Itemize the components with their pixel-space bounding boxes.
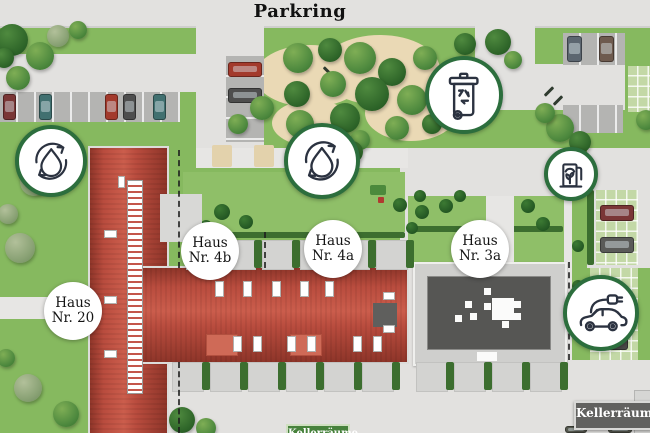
tree — [5, 233, 35, 263]
hedge-divider — [484, 362, 492, 390]
green-parking-east — [596, 190, 638, 265]
bush — [393, 198, 407, 212]
terrace — [262, 240, 294, 270]
car-glass — [125, 101, 134, 111]
car-glass — [233, 66, 257, 72]
hedge-divider — [368, 240, 376, 268]
bush — [572, 240, 584, 252]
tree — [355, 77, 389, 111]
roof-skylight — [253, 336, 262, 352]
tree — [636, 110, 650, 130]
play-equipment — [370, 185, 386, 195]
roof-skylight — [307, 336, 316, 352]
roof-skylight — [373, 336, 382, 352]
hedge-divider — [292, 240, 300, 268]
car-glass — [233, 92, 257, 98]
hedge-divider — [254, 240, 262, 268]
rooftop-vent — [484, 288, 491, 295]
car-glass — [601, 43, 612, 53]
tree — [196, 418, 216, 433]
bush — [521, 199, 535, 213]
hedge-divider — [446, 362, 454, 390]
hedge-divider — [240, 362, 248, 390]
parked-car — [105, 94, 118, 120]
property-boundary — [178, 150, 180, 268]
parked-car — [228, 62, 262, 77]
car-glass — [569, 43, 580, 53]
label-haus-4a[interactable]: Haus Nr. 4a — [304, 220, 362, 278]
label-line: Haus — [451, 234, 509, 249]
tree — [344, 42, 376, 74]
entrance-canopy — [477, 352, 497, 361]
car-glass — [605, 241, 629, 247]
hedge-divider — [316, 362, 324, 390]
roof-window — [118, 176, 125, 188]
parked-car — [153, 94, 166, 120]
hedge-divider — [560, 362, 568, 390]
terrace — [324, 362, 356, 392]
tree — [26, 42, 54, 70]
terrace — [492, 362, 524, 392]
roof-window — [383, 325, 395, 333]
label-line: Haus — [304, 234, 362, 249]
tree — [318, 38, 342, 62]
street-label-parkring: Parkring — [230, 1, 370, 22]
roof-window-strip — [127, 180, 143, 394]
terrace — [172, 362, 204, 392]
bush — [214, 204, 230, 220]
car-glass — [155, 101, 164, 111]
roof-skylight — [215, 281, 224, 297]
hedge-divider — [202, 362, 210, 390]
tree — [169, 407, 195, 433]
roof-window — [104, 350, 117, 358]
roof-skylight — [272, 281, 281, 297]
terrace — [530, 362, 562, 392]
bush — [454, 190, 466, 202]
rooftop-vent — [502, 321, 509, 328]
parked-car — [599, 36, 614, 62]
rooftop-vent — [470, 313, 477, 320]
terrace — [248, 362, 280, 392]
hedge-divider — [354, 362, 362, 390]
rooftop-vent — [514, 301, 521, 308]
roof-skylight — [287, 336, 296, 352]
car-glass — [41, 101, 50, 111]
rooftop-vent — [514, 313, 521, 320]
roof-window — [104, 230, 117, 238]
bush — [239, 215, 253, 229]
roof-window — [104, 296, 117, 304]
tree — [250, 96, 274, 120]
label-haus-4b[interactable]: Haus Nr. 4b — [181, 222, 239, 280]
bush — [415, 205, 429, 219]
hedge-divider — [392, 362, 400, 390]
parked-car — [3, 94, 16, 120]
waste-recycling-bin-icon[interactable] — [425, 56, 503, 134]
basement-sign-bottom: Kellerräume — [286, 424, 350, 433]
rooftop-vent — [465, 301, 472, 308]
rooftop-vent — [455, 315, 462, 322]
tree — [385, 116, 409, 140]
roof-skylight — [300, 281, 309, 297]
roof-window — [383, 292, 395, 300]
tree — [14, 374, 42, 402]
bush — [536, 217, 550, 231]
parked-car — [123, 94, 136, 120]
hedge-divider — [278, 362, 286, 390]
label-line: Nr. 20 — [44, 311, 102, 326]
tree — [6, 66, 30, 90]
tree — [535, 103, 555, 123]
terrace — [362, 362, 394, 392]
hedge-row — [587, 190, 594, 265]
green-parking-pad — [628, 66, 650, 112]
label-haus-3a[interactable]: Haus Nr. 3a — [451, 220, 509, 278]
label-line: Haus — [181, 236, 239, 251]
parked-car — [567, 36, 582, 62]
rooftop-vent — [484, 303, 491, 310]
picnic-spot — [254, 145, 274, 167]
tree — [485, 29, 511, 55]
hedge-divider — [522, 362, 530, 390]
property-boundary — [178, 362, 180, 433]
tree — [47, 25, 69, 47]
ev-charging-car-icon[interactable] — [563, 275, 639, 351]
roof-skylight — [325, 281, 334, 297]
label-haus-20[interactable]: Haus Nr. 20 — [44, 282, 102, 340]
terrace — [210, 362, 242, 392]
tree — [283, 43, 313, 73]
tree — [53, 401, 79, 427]
water-cycle-icon[interactable] — [284, 123, 360, 199]
roof-skylight — [233, 336, 242, 352]
terrace — [416, 362, 448, 392]
hedge-divider — [406, 240, 414, 268]
basement-sign-right: Kellerräume — [574, 401, 650, 430]
tree — [413, 46, 437, 70]
terrace — [286, 362, 318, 392]
site-plan-map: Parkring Haus Nr. 20 Haus — [0, 0, 650, 433]
car-glass — [605, 209, 629, 215]
bush — [406, 222, 418, 234]
label-line: Nr. 4b — [181, 251, 239, 266]
tree — [0, 204, 18, 224]
label-line: Haus — [44, 296, 102, 311]
parked-car — [600, 237, 634, 253]
eco-fuel-station-icon[interactable] — [544, 147, 598, 201]
tree — [228, 114, 248, 134]
car-glass — [107, 101, 116, 111]
bush — [414, 190, 426, 202]
tree — [284, 81, 310, 107]
roof-skylight — [243, 281, 252, 297]
rooftop-structure — [492, 298, 514, 320]
tree — [504, 51, 522, 69]
picnic-spot — [212, 145, 232, 167]
parked-car — [39, 94, 52, 120]
label-line: Nr. 4a — [304, 249, 362, 264]
car-glass — [5, 101, 14, 111]
roof-recess — [373, 303, 397, 327]
terrace — [454, 362, 486, 392]
property-boundary — [264, 232, 266, 268]
tree — [69, 21, 87, 39]
label-line: Nr. 3a — [451, 249, 509, 264]
tree — [320, 71, 346, 97]
water-cycle-icon[interactable] — [15, 125, 87, 197]
terrace — [376, 240, 408, 270]
bush — [439, 199, 453, 213]
parked-car — [600, 205, 634, 221]
roof-skylight — [353, 336, 362, 352]
tree — [397, 85, 427, 115]
tree — [454, 33, 476, 55]
play-equipment — [378, 197, 384, 203]
tree — [0, 349, 15, 367]
